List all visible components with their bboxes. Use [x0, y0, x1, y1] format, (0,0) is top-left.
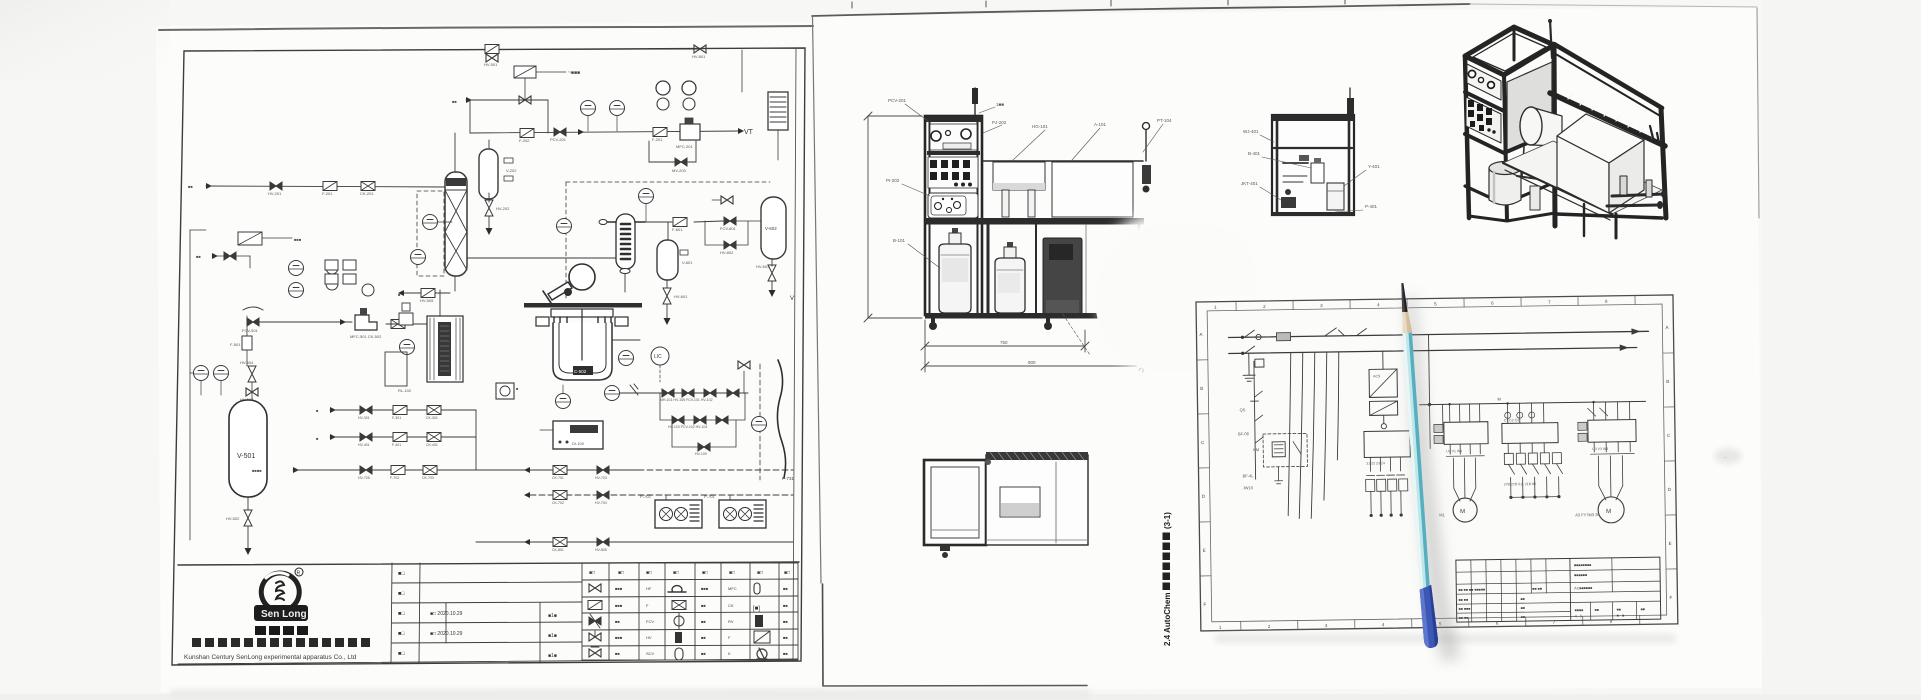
svg-text:MFC-501 CK-502: MFC-501 CK-502 — [350, 334, 382, 339]
svg-text:HV-801: HV-801 — [692, 54, 706, 59]
svg-text:KM: KM — [1253, 447, 1259, 452]
svg-text:[■]: [■] — [753, 606, 760, 612]
svg-text:■■: ■■ — [1521, 606, 1525, 610]
svg-text:■□: ■□ — [398, 591, 405, 597]
svg-text:PJ-202: PJ-202 — [992, 120, 1007, 125]
svg-text:■■: ■■ — [1520, 597, 1524, 601]
svg-text:Kunshan Century SenLong experi: Kunshan Century SenLong experimental app… — [184, 654, 357, 661]
svg-text:■■■: ■■■ — [615, 635, 623, 640]
svg-text:F-501: F-501 — [230, 342, 241, 347]
svg-text:HV-704: HV-704 — [595, 501, 607, 505]
svg-text:HV: HV — [646, 635, 652, 640]
svg-text:DI-100: DI-100 — [572, 441, 585, 446]
svg-text:V-602: V-602 — [765, 226, 777, 231]
svg-text:HV-301: HV-301 — [358, 416, 370, 420]
svg-text:M1: M1 — [1439, 512, 1445, 517]
svg-text:21 22 23 24: 21 22 23 24 — [1366, 461, 1385, 465]
svg-text:HF: HF — [646, 586, 652, 591]
svg-text:FCV: FCV — [646, 619, 654, 624]
svg-text:..: .. — [1724, 454, 1727, 460]
svg-text:■■: ■■ — [196, 254, 201, 259]
svg-text:~■■■: ~■■■ — [568, 70, 580, 76]
svg-text:E: E — [1669, 541, 1672, 546]
svg-text:B-401: B-401 — [1248, 151, 1261, 156]
svg-text:■■■■: ■■■■ — [252, 468, 262, 473]
svg-text:QS: QS — [1240, 407, 1246, 412]
svg-text:BF-4L: BF-4L — [1243, 473, 1255, 478]
svg-text:■■: ■■ — [701, 651, 706, 656]
svg-text:F-301: F-301 — [392, 416, 401, 420]
svg-text:CK-301: CK-301 — [426, 416, 438, 420]
svg-text:B: B — [1666, 379, 1669, 384]
svg-text:■□: ■□ — [784, 570, 790, 576]
svg-text:■■: ■■ — [783, 635, 788, 640]
svg-text:■■: ■■ — [615, 651, 620, 656]
svg-text:BF-08: BF-08 — [1238, 431, 1250, 436]
svg-text:■■: ■■ — [701, 603, 706, 608]
svg-text:■■: ■■ — [452, 99, 457, 104]
svg-text:CK-701: CK-701 — [552, 476, 564, 480]
svg-text:CK-702: CK-702 — [552, 501, 564, 505]
svg-text:C1 C2 C3: C1 C2 C3 — [1504, 418, 1519, 422]
svg-text:A-101: A-101 — [1094, 122, 1107, 127]
svg-text:VT: VT — [744, 129, 754, 136]
svg-text:P-702: P-702 — [640, 494, 651, 499]
svg-text:HV-103 PCV-102 HV-104: HV-103 PCV-102 HV-104 — [668, 425, 707, 429]
svg-text:U1 V1 W1: U1 V1 W1 — [1446, 449, 1462, 453]
svg-text:HG-101: HG-101 — [1032, 124, 1048, 129]
svg-text:■□: ■□ — [398, 611, 405, 617]
svg-text:■■: ■■ — [1595, 608, 1599, 612]
svg-text:A: A — [1665, 325, 1668, 330]
svg-text:■■: ■■ — [1641, 607, 1645, 611]
svg-text:HV-802: HV-802 — [720, 250, 734, 255]
svg-text:RV: RV — [728, 619, 734, 624]
svg-text:HV-501: HV-501 — [484, 62, 498, 67]
svg-text:E: E — [1203, 548, 1206, 553]
svg-text:F-201: F-201 — [322, 191, 333, 196]
svg-text:1■■: 1■■ — [996, 102, 1004, 107]
svg-text:MH-101 HV-105 FCV-101 HV-102: MH-101 HV-105 FCV-101 HV-102 — [660, 398, 713, 402]
svg-text:CK-401: CK-401 — [426, 443, 438, 447]
svg-text:MFC-201: MFC-201 — [676, 144, 693, 149]
svg-text:CK-703: CK-703 — [422, 476, 434, 480]
svg-text:U3 V3 W3: U3 V3 W3 — [1592, 447, 1608, 451]
svg-text:CK: CK — [728, 603, 734, 608]
svg-text:M: M — [1460, 509, 1465, 515]
svg-text:F-601: F-601 — [672, 227, 683, 232]
svg-text:C-502: C-502 — [574, 369, 587, 374]
svg-text:(3-1): (3-1) — [1163, 512, 1172, 529]
svg-text:■■■■: ■■■■ — [1575, 608, 1584, 612]
svg-text:HV-705: HV-705 — [358, 476, 370, 480]
svg-text:900: 900 — [1028, 360, 1036, 365]
svg-text:Sen Long: Sen Long — [261, 609, 307, 620]
svg-text:JW10: JW10 — [1243, 485, 1254, 490]
svg-text:V-501: V-501 — [237, 453, 255, 460]
svg-text:■■: ■■ — [783, 603, 788, 608]
svg-text:V-601: V-601 — [682, 260, 693, 265]
svg-text:■1■: ■1■ — [548, 613, 557, 619]
svg-text:■■: ■■ — [1617, 608, 1621, 612]
svg-text:■■: ■■ — [783, 586, 788, 591]
svg-text:F: F — [1203, 602, 1206, 607]
svg-text:R: R — [297, 571, 301, 577]
svg-text:HV-805: HV-805 — [595, 548, 607, 552]
svg-text:■■: ■■ — [701, 619, 706, 624]
svg-text:P-401: P-401 — [1365, 204, 1378, 209]
svg-text:F-702: F-702 — [390, 476, 399, 480]
svg-text:A: A — [1199, 332, 1202, 337]
svg-text:F-201: F-201 — [652, 137, 663, 142]
svg-text:■■: ■■ — [783, 619, 788, 624]
svg-text:■■ ■■ ■■ ■■■■■: ■■ ■■ ■■ ■■■■■ — [1458, 588, 1485, 592]
svg-text:■■: ■■ — [615, 619, 620, 624]
svg-text:HV-603: HV-603 — [756, 264, 770, 269]
svg-text:■□: ■□ — [398, 631, 405, 637]
svg-text:A3 FY7M3 30: A3 FY7M3 30 — [1575, 512, 1600, 517]
svg-text:■■: ■■ — [188, 184, 193, 189]
svg-text:4 - 5: 4 - 5 — [1575, 614, 1582, 618]
svg-text:27B 27B 51L 21B 80: 27B 27B 51L 21B 80 — [1504, 482, 1536, 486]
svg-text:HV-505: HV-505 — [420, 298, 434, 303]
svg-text:ACS: ACS — [1373, 374, 1381, 378]
svg-text:FCV-801: FCV-801 — [720, 226, 737, 231]
svg-text:HV-202: HV-202 — [496, 206, 510, 211]
svg-text:M: M — [1497, 396, 1500, 401]
svg-text:■1■: ■1■ — [548, 633, 557, 639]
svg-text:■■: ■■ — [701, 635, 706, 640]
svg-text:■□: ■□ — [398, 571, 405, 577]
svg-text:■□: ■□ — [618, 570, 624, 576]
svg-text:PT-104: PT-104 — [1157, 118, 1172, 123]
svg-text:F-202: F-202 — [519, 138, 530, 143]
svg-text:■□ 2020.10.29: ■□ 2020.10.29 — [430, 611, 463, 617]
svg-text:PI-202: PI-202 — [886, 178, 900, 183]
svg-text:B-101: B-101 — [893, 238, 906, 243]
svg-text:■□: ■□ — [757, 570, 763, 576]
svg-text:F-401: F-401 — [392, 443, 401, 447]
svg-text:P-701: P-701 — [704, 494, 715, 499]
svg-text:750: 750 — [1000, 340, 1008, 345]
svg-text:K: K — [728, 651, 731, 656]
svg-text:■■■■■■■■: ■■■■■■■■ — [1574, 563, 1591, 567]
svg-text:■■■: ■■■ — [615, 603, 623, 608]
svg-text:■□: ■□ — [729, 570, 735, 576]
svg-text:■■ ■■: ■■ ■■ — [1532, 587, 1542, 591]
svg-text:■1■: ■1■ — [548, 653, 557, 659]
svg-text:■□: ■□ — [589, 570, 595, 576]
svg-text:■□: ■□ — [702, 570, 708, 576]
svg-text:Y-401: Y-401 — [1368, 164, 1380, 169]
svg-text:RL-102: RL-102 — [398, 388, 412, 393]
svg-text:■ - ■: ■ - ■ — [1617, 614, 1625, 618]
svg-text:■□: ■□ — [646, 570, 652, 576]
svg-text:2.4 AutoChem: 2.4 AutoChem — [1163, 593, 1172, 647]
svg-text:PCV-201: PCV-201 — [550, 137, 567, 142]
svg-text:B: B — [1200, 386, 1203, 391]
svg-text:■□: ■□ — [398, 651, 405, 657]
svg-text:V: V — [790, 296, 794, 302]
svg-text:HV-502: HV-502 — [226, 516, 240, 521]
svg-text:MV-203: MV-203 — [672, 168, 687, 173]
svg-text:■■■: ■■■ — [615, 586, 623, 591]
svg-text:AC■■■■■■: AC■■■■■■ — [1574, 586, 1592, 590]
svg-text:P-731: P-731 — [782, 476, 795, 481]
svg-text:HV-109: HV-109 — [695, 452, 707, 456]
svg-text:SCV: SCV — [646, 651, 655, 656]
svg-text:■□ 2020.10.29: ■□ 2020.10.29 — [430, 631, 463, 637]
svg-text:MFC: MFC — [728, 586, 737, 591]
svg-text:■■■: ■■■ — [294, 237, 302, 242]
svg-text:HV-703: HV-703 — [595, 476, 607, 480]
svg-text:HV-201: HV-201 — [268, 191, 282, 196]
svg-text:■■■■■■: ■■■■■■ — [1574, 573, 1587, 577]
svg-text:WJ-401: WJ-401 — [1243, 129, 1259, 134]
svg-text:M: M — [1606, 509, 1611, 515]
svg-text:F: F — [1669, 595, 1672, 600]
svg-text:CK-801: CK-801 — [552, 548, 564, 552]
svg-text:V-202: V-202 — [506, 168, 517, 173]
svg-text:■■ ■■: ■■ ■■ — [1458, 598, 1468, 602]
svg-text:■□: ■□ — [673, 570, 679, 576]
svg-text:■■ ■■: ■■ ■■ — [1459, 616, 1469, 620]
svg-text:PCV-201: PCV-201 — [888, 98, 907, 103]
svg-text:HV-601: HV-601 — [674, 294, 688, 299]
svg-text:JKT-401: JKT-401 — [1241, 181, 1258, 186]
svg-text:FCV-501: FCV-501 — [242, 328, 259, 333]
svg-text:LIC: LIC — [654, 354, 662, 360]
svg-text:■■: ■■ — [1521, 615, 1525, 619]
svg-text:HV-401: HV-401 — [358, 443, 370, 447]
svg-text:CK-201: CK-201 — [360, 191, 374, 196]
svg-text:■■: ■■ — [783, 651, 788, 656]
svg-text:■■ ■■■: ■■ ■■■ — [1459, 607, 1471, 611]
svg-text:■■■: ■■■ — [701, 586, 709, 591]
